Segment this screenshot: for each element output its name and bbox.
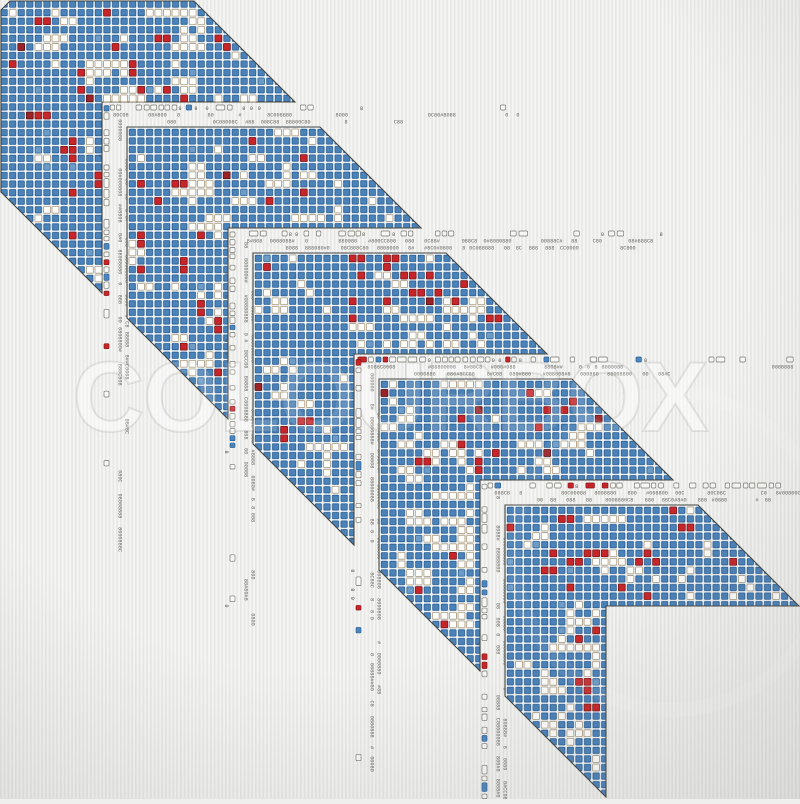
svg-text:COLOURBOX: COLOURBOX: [73, 341, 708, 452]
